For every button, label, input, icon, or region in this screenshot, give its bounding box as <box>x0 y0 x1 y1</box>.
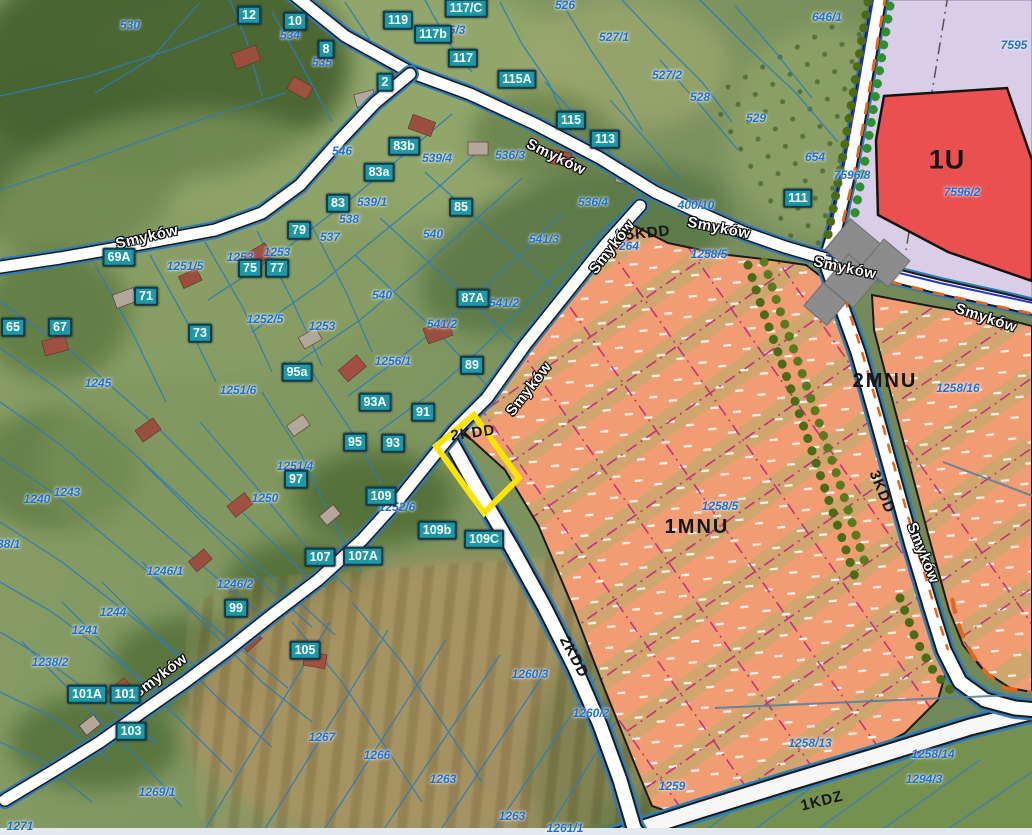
parcel-number-label: 1258/16 <box>936 382 979 394</box>
parcel-number-label: 529 <box>746 112 766 124</box>
address-badge[interactable]: 12 <box>237 6 261 25</box>
address-badge[interactable]: 65 <box>1 318 25 337</box>
parcel-number-label: 1263 <box>430 773 457 785</box>
parcel-number-label: 1258/5 <box>691 248 728 260</box>
parcel-number-label: 539/1 <box>357 196 387 208</box>
parcel-number-label: 1256/1 <box>375 355 412 367</box>
parcel-number-label: 1245 <box>85 377 112 389</box>
parcel-number-label: 527/2 <box>652 69 682 81</box>
zone-code-label: 1KDZ <box>799 789 845 814</box>
parcel-number-label: 1258/14 <box>911 748 954 760</box>
address-badge[interactable]: 95a <box>282 363 313 382</box>
address-badge[interactable]: 89 <box>460 356 484 375</box>
zone-code-label: 1MNU <box>665 517 730 537</box>
address-badge[interactable]: 115 <box>556 111 586 130</box>
address-badge[interactable]: 103 <box>116 722 147 741</box>
address-badge[interactable]: 105 <box>290 641 321 660</box>
parcel-number-label: 1243 <box>54 486 81 498</box>
address-badge[interactable]: 77 <box>265 259 289 278</box>
parcel-number-label: 1259 <box>659 780 686 792</box>
zone-code-label: 2MNU <box>853 371 918 391</box>
parcel-number-label: 534 <box>280 29 300 41</box>
address-badge[interactable]: 107A <box>343 547 383 566</box>
address-badge[interactable]: 71 <box>134 287 158 306</box>
address-badge[interactable]: 113 <box>590 130 620 149</box>
parcel-number-label: 1250 <box>252 492 279 504</box>
street-name-label: Smyków <box>524 136 588 177</box>
parcel-number-label: 1251/6 <box>220 384 257 396</box>
address-badge[interactable]: 117/C <box>445 0 488 17</box>
address-badge[interactable]: 111 <box>783 189 812 208</box>
address-badge[interactable]: 10 <box>283 12 307 31</box>
parcel-number-label: 541/3 <box>529 233 559 245</box>
parcel-number-label: 527/1 <box>599 31 629 43</box>
address-badge[interactable]: 117 <box>448 49 478 68</box>
parcel-number-label: 526 <box>555 0 575 11</box>
parcel-number-label: 7596/2 <box>944 186 981 198</box>
zone-code-label: 2KDD <box>557 634 591 681</box>
zone-code-label: 3KDD <box>867 468 898 515</box>
address-badge[interactable]: 115A <box>497 70 536 89</box>
street-name-label: Smyków <box>686 215 752 242</box>
parcel-number-label: 540 <box>423 228 443 240</box>
parcel-number-label: 1246/2 <box>217 578 254 590</box>
parcel-number-label: 1258/5 <box>702 500 739 512</box>
address-badge[interactable]: 109C <box>464 530 504 549</box>
parcel-number-label: 1241 <box>72 624 99 636</box>
address-badge[interactable]: 101 <box>110 685 141 704</box>
address-badge[interactable]: 93A <box>359 393 392 412</box>
address-badge[interactable]: 85 <box>449 198 473 217</box>
parcel-number-label: 646/1 <box>812 11 842 23</box>
address-badge[interactable]: 8 <box>318 40 335 59</box>
address-badge[interactable]: 109b <box>418 521 457 540</box>
address-badge[interactable]: 93 <box>381 434 405 453</box>
zone-code-label: 1U <box>929 147 966 174</box>
address-badge[interactable]: 83 <box>326 194 350 213</box>
address-badge[interactable]: 97 <box>284 470 308 489</box>
parcel-number-label: 1258/13 <box>788 737 831 749</box>
street-name-label: Smyków <box>904 521 942 586</box>
parcel-number-label: 7595 <box>1001 39 1028 51</box>
parcel-number-label: 546 <box>332 145 352 157</box>
zone-code-label: 5KDD <box>625 223 671 243</box>
street-name-label: Smyków <box>953 301 1018 335</box>
parcel-number-label: 1266 <box>364 749 391 761</box>
address-badge[interactable]: 83b <box>388 137 420 156</box>
parcel-number-label: 1253 <box>264 246 291 258</box>
parcel-number-label: 1260/2 <box>573 707 610 719</box>
parcel-number-label: 536/4 <box>578 196 608 208</box>
parcel-number-label: 1294/3 <box>906 773 943 785</box>
parcel-number-label: 400/10 <box>678 199 715 211</box>
parcel-number-label: 541/2 <box>427 318 457 330</box>
parcel-number-label: 1271 <box>7 820 34 832</box>
parcel-number-label: 536/3 <box>495 149 525 161</box>
address-badge[interactable]: 119 <box>383 11 413 30</box>
address-badge[interactable]: 99 <box>224 599 248 618</box>
address-badge[interactable]: 101A <box>67 685 107 704</box>
address-badge[interactable]: 87A <box>457 289 490 308</box>
address-badge[interactable]: 75 <box>238 259 262 278</box>
parcel-number-label: 1238/2 <box>32 656 69 668</box>
parcel-number-label: 1269/1 <box>139 786 176 798</box>
parcel-number-label: 1240 <box>24 493 51 505</box>
parcel-number-label: 1253 <box>309 320 336 332</box>
address-badge[interactable]: 109 <box>366 487 397 506</box>
parcel-number-label: 1251/5 <box>167 260 204 272</box>
address-badge[interactable]: 117b <box>414 25 452 44</box>
address-badge[interactable]: 95 <box>343 433 367 452</box>
parcel-number-label: 1252/5 <box>247 313 284 325</box>
parcel-number-label: 1260/3 <box>512 668 549 680</box>
parcel-number-label: 7596/8 <box>834 169 871 181</box>
parcel-number-label: 1244 <box>100 606 127 618</box>
address-badge[interactable]: 107 <box>305 548 336 567</box>
parcel-number-label: 538 <box>339 213 359 225</box>
parcel-number-label: 1263 <box>499 810 526 822</box>
address-badge[interactable]: 2 <box>377 73 394 92</box>
parcel-number-label: 1238/1 <box>0 538 20 550</box>
parcel-number-label: 537 <box>320 231 340 243</box>
street-name-label: Smyków <box>503 359 554 419</box>
zone-code-label: 2KDD <box>450 422 496 443</box>
parcel-number-label: 654 <box>805 151 825 163</box>
address-badge[interactable]: 73 <box>188 324 212 343</box>
parcel-number-label: 539/4 <box>422 152 452 164</box>
parcel-number-label: 530 <box>120 19 140 31</box>
parcel-number-label: 528 <box>690 91 710 103</box>
parcel-number-label: 1261/1 <box>547 822 584 834</box>
parcel-number-label: 540 <box>372 289 392 301</box>
address-badge[interactable]: 91 <box>411 403 435 422</box>
address-badge[interactable]: 67 <box>48 318 72 337</box>
address-badge[interactable]: 83a <box>364 163 395 182</box>
parcel-number-label: 1267 <box>309 731 336 743</box>
parcel-number-label: 1246/1 <box>147 565 184 577</box>
zoning-map-canvas[interactable]: 5305345355265/3527/1527/2528529646/17595… <box>0 0 1032 835</box>
address-badge[interactable]: 69A <box>103 248 136 267</box>
label-layer: 5305345355265/3527/1527/2528529646/17595… <box>0 0 1032 835</box>
street-name-label: Smyków <box>812 254 878 282</box>
address-badge[interactable]: 79 <box>287 221 311 240</box>
parcel-number-label: 541/2 <box>489 297 519 309</box>
